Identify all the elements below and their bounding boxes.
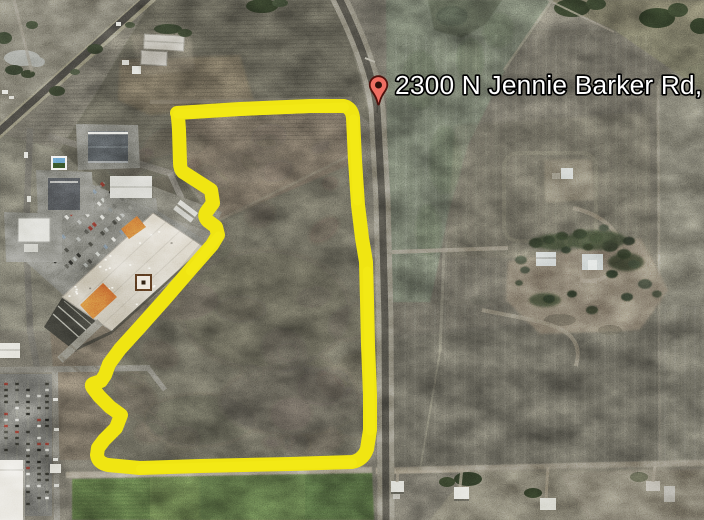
svg-text:2300 N Jennie Barker Rd,: 2300 N Jennie Barker Rd, (395, 70, 702, 100)
